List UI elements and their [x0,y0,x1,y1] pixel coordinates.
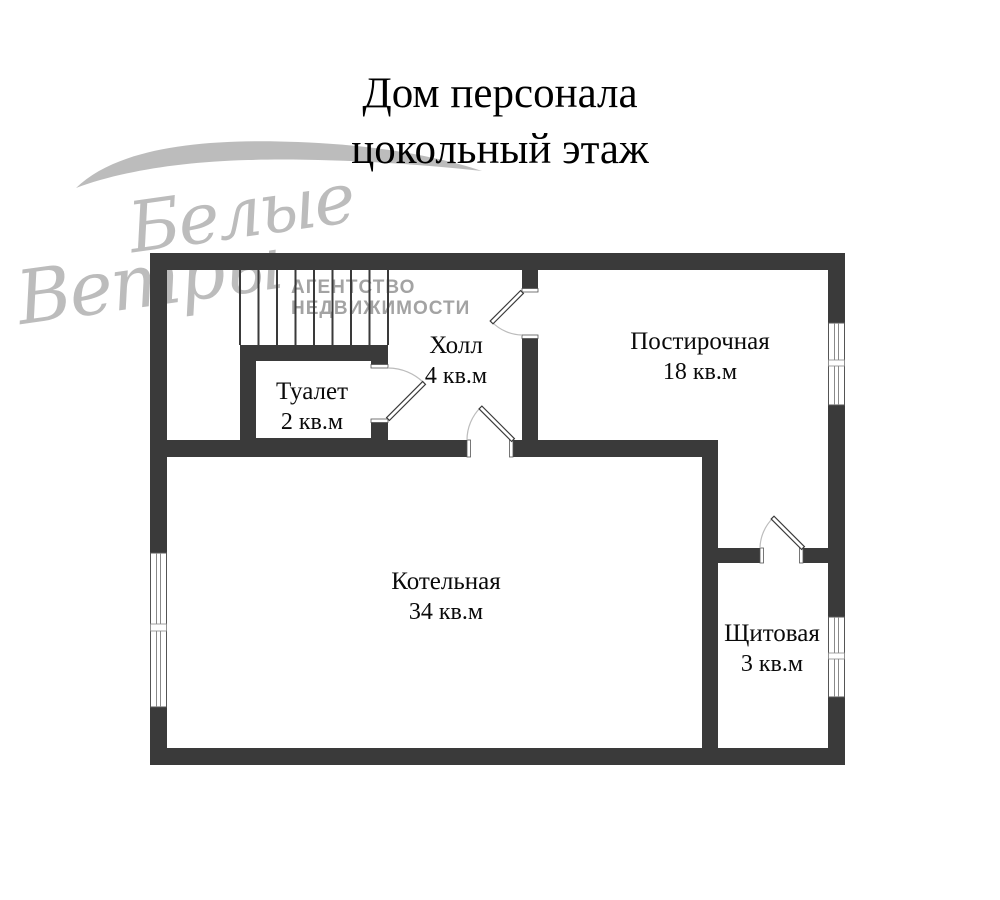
floorplan-page: Дом персонала цокольный этаж Белые Ветры… [0,0,1000,900]
wall-panel-top-right [803,548,828,563]
window-boiler-left [151,553,167,707]
room-area: 3 кв.м [724,649,820,680]
room-name: Туалет [276,376,348,407]
wall-toilet-bottom [240,438,388,457]
room-name: Котельная [391,566,500,597]
room-label-hall: Холл 4 кв.м [425,330,487,392]
page-title: Дом персонала цокольный этаж [0,66,1000,178]
room-label-laundry: Постирочная 18 кв.м [630,326,769,388]
room-area: 2 кв.м [276,407,348,438]
wall-boiler-top-right [513,440,718,457]
wall-panel-top-left [702,548,760,563]
wall-outer-top [150,253,845,270]
hall-boiler-door [467,406,514,441]
room-name: Щитовая [724,618,820,649]
room-name: Постирочная [630,326,769,357]
staircase [240,270,388,345]
title-line-2: цокольный этаж [0,122,1000,178]
window-laundry-right [829,323,845,405]
window-panel-right [829,617,845,697]
room-label-boiler: Котельная 34 кв.м [391,566,500,628]
wall-hall-laundry-lower [522,335,538,457]
wall-toilet-right-lower [371,419,388,457]
toilet-door [387,368,426,420]
wall-outer-bottom [150,748,845,765]
room-label-toilet: Туалет 2 кв.м [276,376,348,438]
wall-boiler-panel [702,457,718,748]
room-area: 34 кв.м [391,597,500,628]
room-label-panel: Щитовая 3 кв.м [724,618,820,680]
laundry-panel-door [760,516,804,549]
wall-toilet-top [240,345,388,361]
room-name: Холл [425,330,487,361]
title-line-1: Дом персонала [0,66,1000,122]
room-area: 4 кв.м [425,361,487,392]
hall-laundry-door [490,291,523,335]
room-area: 18 кв.м [630,357,769,388]
